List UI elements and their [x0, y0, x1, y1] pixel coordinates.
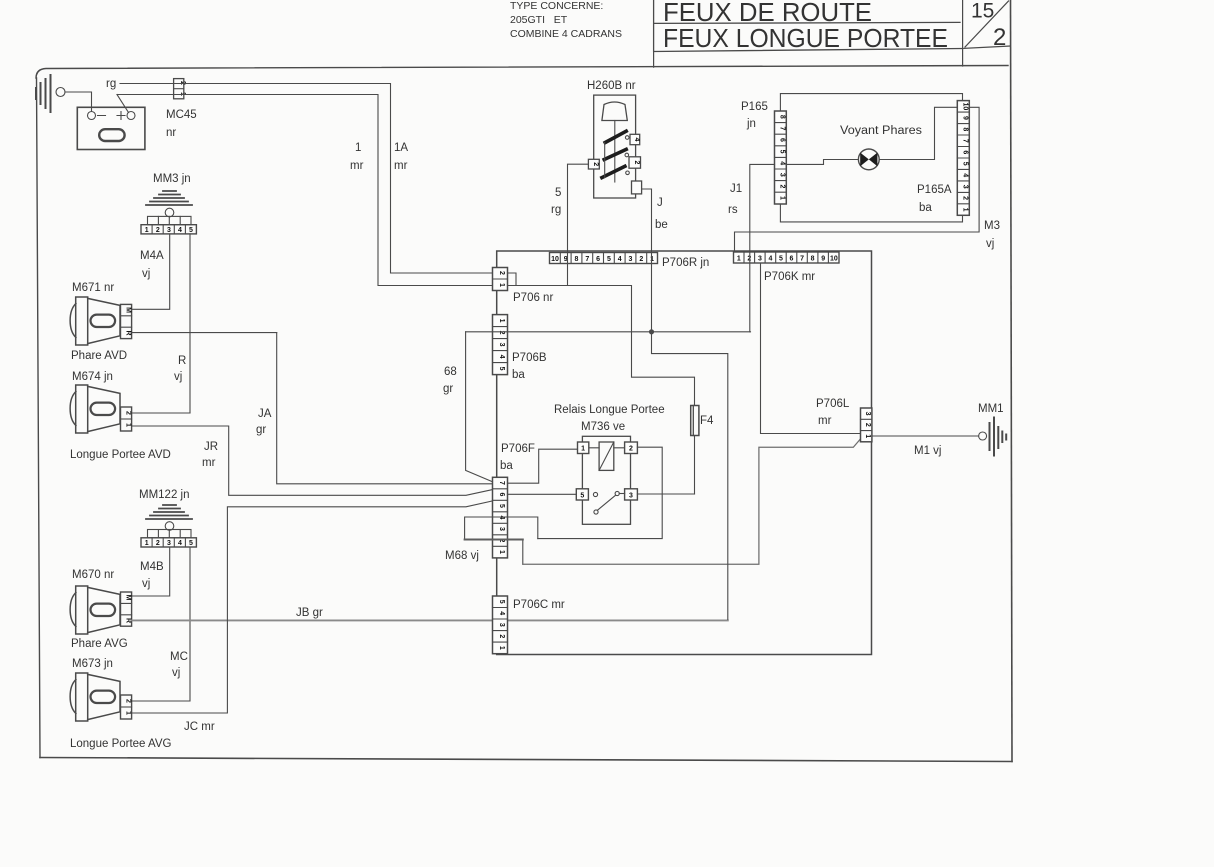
- svg-text:Longue Portee AVG: Longue Portee AVG: [70, 738, 171, 750]
- svg-text:Phare AVD: Phare AVD: [71, 350, 127, 362]
- svg-text:5: 5: [779, 255, 783, 262]
- svg-text:5: 5: [189, 540, 193, 547]
- svg-text:10: 10: [961, 103, 968, 111]
- svg-text:8: 8: [961, 127, 968, 131]
- svg-text:ba: ba: [919, 202, 932, 214]
- svg-text:2: 2: [592, 162, 599, 166]
- svg-text:1: 1: [124, 423, 131, 427]
- svg-text:1: 1: [355, 142, 361, 154]
- svg-text:vj: vj: [174, 371, 182, 383]
- svg-text:M1 vj: M1 vj: [914, 445, 941, 457]
- svg-text:5: 5: [607, 256, 611, 263]
- svg-text:7: 7: [778, 126, 785, 130]
- svg-text:P706R jn: P706R jn: [662, 257, 709, 269]
- svg-text:1: 1: [145, 227, 149, 234]
- svg-text:P706F: P706F: [501, 443, 535, 455]
- svg-text:Voyant Phares: Voyant Phares: [840, 125, 922, 137]
- svg-text:gr: gr: [443, 383, 453, 395]
- svg-text:68: 68: [444, 366, 457, 378]
- svg-text:4: 4: [768, 255, 772, 262]
- svg-text:5: 5: [498, 504, 505, 508]
- svg-text:M3: M3: [984, 220, 1000, 232]
- svg-text:5: 5: [961, 162, 968, 166]
- svg-text:4: 4: [633, 138, 640, 142]
- svg-text:vj: vj: [172, 667, 180, 679]
- svg-text:6: 6: [961, 150, 968, 154]
- svg-text:5: 5: [580, 492, 584, 499]
- svg-text:4: 4: [178, 227, 182, 234]
- svg-text:nr: nr: [166, 127, 176, 139]
- svg-text:8: 8: [575, 256, 579, 263]
- svg-text:7: 7: [585, 256, 589, 263]
- svg-text:2: 2: [633, 161, 640, 165]
- svg-text:9: 9: [961, 116, 968, 120]
- svg-text:J: J: [657, 197, 663, 209]
- svg-text:1: 1: [145, 540, 149, 547]
- svg-text:4: 4: [498, 611, 505, 615]
- svg-text:1: 1: [737, 255, 741, 262]
- svg-text:7: 7: [800, 255, 804, 262]
- svg-text:3: 3: [498, 527, 505, 531]
- svg-text:1A: 1A: [394, 142, 408, 154]
- svg-text:2: 2: [961, 196, 968, 200]
- svg-text:3: 3: [498, 623, 505, 627]
- svg-text:1: 1: [961, 208, 968, 212]
- svg-text:MC45: MC45: [166, 109, 197, 121]
- svg-text:M68 vj: M68 vj: [445, 550, 479, 562]
- svg-text:JA: JA: [258, 408, 272, 420]
- svg-text:2: 2: [629, 446, 633, 453]
- svg-text:6: 6: [596, 256, 600, 263]
- svg-text:5: 5: [189, 227, 193, 234]
- svg-text:M4A: M4A: [140, 250, 164, 262]
- svg-text:M4B: M4B: [140, 561, 164, 573]
- svg-text:MM3 jn: MM3 jn: [153, 173, 191, 185]
- svg-text:FEUX LONGUE PORTEE: FEUX LONGUE PORTEE: [663, 23, 948, 53]
- svg-text:M736 ve: M736 ve: [581, 421, 625, 433]
- svg-text:Relais Longue Portee: Relais Longue Portee: [554, 404, 665, 416]
- svg-text:2: 2: [498, 331, 505, 335]
- svg-text:8: 8: [811, 255, 815, 262]
- svg-text:3: 3: [864, 412, 871, 416]
- svg-text:COMBINE 4 CADRANS: COMBINE 4 CADRANS: [510, 28, 622, 40]
- svg-text:1: 1: [778, 196, 785, 200]
- svg-text:15: 15: [971, 0, 994, 23]
- svg-text:10: 10: [830, 255, 838, 262]
- svg-text:2: 2: [993, 24, 1006, 51]
- svg-text:JC mr: JC mr: [184, 721, 215, 733]
- svg-text:2: 2: [124, 699, 131, 703]
- svg-text:M670 nr: M670 nr: [72, 569, 114, 581]
- svg-text:Longue Portee AVD: Longue Portee AVD: [70, 449, 171, 461]
- svg-text:M: M: [124, 595, 131, 601]
- svg-text:5: 5: [498, 367, 505, 371]
- svg-text:2: 2: [498, 634, 505, 638]
- svg-text:1: 1: [498, 319, 505, 323]
- svg-text:1: 1: [498, 283, 505, 287]
- svg-text:P165: P165: [741, 101, 768, 113]
- svg-text:vj: vj: [142, 268, 150, 280]
- svg-text:3: 3: [778, 173, 785, 177]
- svg-text:MM1: MM1: [978, 403, 1004, 415]
- svg-text:R: R: [178, 355, 186, 367]
- svg-text:5: 5: [555, 187, 561, 199]
- svg-text:M674 jn: M674 jn: [72, 371, 113, 383]
- svg-text:vj: vj: [142, 578, 150, 590]
- svg-text:8: 8: [778, 115, 785, 119]
- svg-text:mr: mr: [202, 457, 216, 469]
- svg-text:1: 1: [498, 550, 505, 554]
- svg-text:1: 1: [650, 256, 654, 263]
- svg-text:1: 1: [124, 711, 131, 715]
- svg-text:P706 nr: P706 nr: [513, 292, 553, 304]
- svg-text:5: 5: [778, 150, 785, 154]
- svg-text:6: 6: [778, 138, 785, 142]
- svg-text:3: 3: [629, 256, 633, 263]
- svg-text:2: 2: [639, 256, 643, 263]
- svg-text:3: 3: [167, 227, 171, 234]
- svg-text:7: 7: [961, 139, 968, 143]
- svg-text:M673 jn: M673 jn: [72, 658, 113, 670]
- svg-text:J1: J1: [730, 183, 742, 195]
- svg-text:MM122 jn: MM122 jn: [139, 489, 190, 501]
- svg-text:3: 3: [758, 255, 762, 262]
- svg-text:M671 nr: M671 nr: [72, 282, 114, 294]
- svg-text:6: 6: [498, 493, 505, 497]
- svg-text:JR: JR: [204, 441, 218, 453]
- svg-text:10: 10: [551, 256, 559, 263]
- svg-text:4: 4: [778, 161, 785, 165]
- svg-text:vj: vj: [986, 238, 994, 250]
- svg-text:P706C mr: P706C mr: [513, 599, 565, 611]
- svg-text:3: 3: [498, 343, 505, 347]
- svg-text:1: 1: [498, 646, 505, 650]
- svg-text:4: 4: [178, 540, 182, 547]
- svg-text:be: be: [655, 219, 668, 231]
- svg-text:TYPE CONCERNE:: TYPE CONCERNE:: [510, 0, 603, 12]
- svg-text:M: M: [124, 307, 131, 313]
- svg-text:3: 3: [629, 492, 633, 499]
- svg-text:3: 3: [167, 540, 171, 547]
- svg-text:3: 3: [961, 185, 968, 189]
- svg-text:P706B: P706B: [512, 352, 547, 364]
- svg-text:4: 4: [961, 173, 968, 177]
- svg-text:ba: ba: [512, 369, 525, 381]
- svg-text:rg: rg: [106, 78, 116, 90]
- svg-text:5: 5: [498, 600, 505, 604]
- svg-text:2: 2: [498, 271, 505, 275]
- svg-text:P165A: P165A: [917, 184, 952, 196]
- svg-text:2: 2: [778, 184, 785, 188]
- svg-text:mr: mr: [350, 160, 364, 172]
- svg-text:2: 2: [156, 227, 160, 234]
- svg-text:R: R: [124, 618, 131, 623]
- svg-text:mr: mr: [818, 415, 832, 427]
- svg-text:9: 9: [821, 255, 825, 262]
- svg-text:H260B nr: H260B nr: [587, 80, 636, 92]
- svg-text:Phare AVG: Phare AVG: [71, 638, 128, 650]
- svg-text:rg: rg: [551, 204, 561, 216]
- svg-text:F4: F4: [700, 415, 714, 427]
- svg-text:jn: jn: [746, 118, 756, 130]
- svg-text:P706K mr: P706K mr: [764, 271, 815, 283]
- svg-text:2: 2: [156, 540, 160, 547]
- svg-text:ba: ba: [500, 460, 513, 472]
- svg-text:7: 7: [498, 481, 505, 485]
- svg-text:gr: gr: [256, 424, 266, 436]
- svg-text:mr: mr: [394, 160, 408, 172]
- svg-text:6: 6: [790, 255, 794, 262]
- svg-text:P706L: P706L: [816, 398, 850, 410]
- svg-text:1: 1: [864, 434, 871, 438]
- svg-text:2: 2: [864, 423, 871, 427]
- svg-text:MC: MC: [170, 651, 188, 663]
- svg-text:1: 1: [581, 446, 585, 453]
- svg-text:4: 4: [618, 256, 622, 263]
- svg-text:R: R: [124, 330, 131, 335]
- svg-text:2: 2: [124, 411, 131, 415]
- svg-text:4: 4: [498, 355, 505, 359]
- svg-text:rs: rs: [728, 204, 738, 216]
- svg-text:JB gr: JB gr: [296, 607, 323, 619]
- svg-text:205GTI ET: 205GTI ET: [510, 14, 568, 26]
